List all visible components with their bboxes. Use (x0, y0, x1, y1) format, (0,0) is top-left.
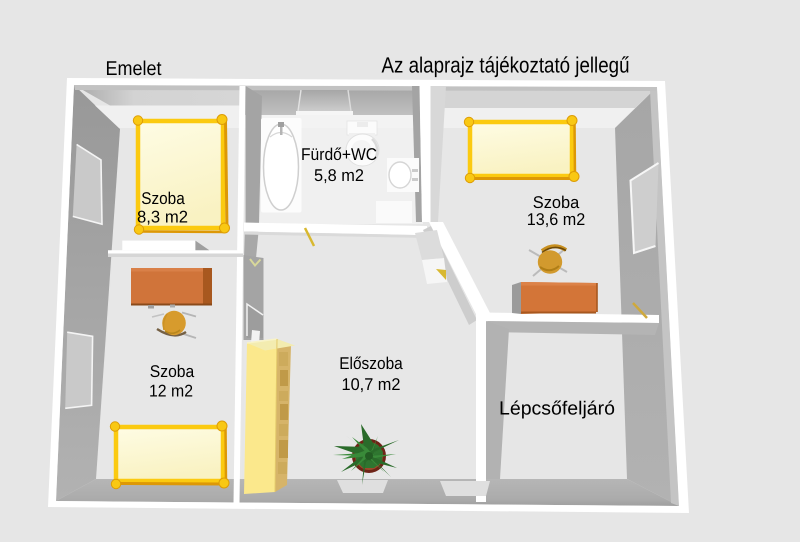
svg-text:Emelet: Emelet (106, 58, 162, 80)
svg-text:Szoba: Szoba (150, 362, 195, 381)
svg-text:Az alaprajz tájékoztató jelleg: Az alaprajz tájékoztató jellegű (382, 53, 630, 78)
svg-text:Lépcsőfeljáró: Lépcsőfeljáró (499, 399, 615, 420)
svg-text:12 m2: 12 m2 (149, 382, 193, 401)
svg-text:Fürdő+WC: Fürdő+WC (301, 145, 377, 164)
svg-text:Szoba: Szoba (141, 189, 185, 208)
svg-text:13,6 m2: 13,6 m2 (527, 210, 586, 229)
svg-text:Előszoba: Előszoba (339, 354, 403, 373)
svg-text:8,3 m2: 8,3 m2 (137, 208, 188, 227)
svg-text:5,8 m2: 5,8 m2 (314, 166, 364, 185)
svg-text:10,7 m2: 10,7 m2 (342, 375, 401, 394)
